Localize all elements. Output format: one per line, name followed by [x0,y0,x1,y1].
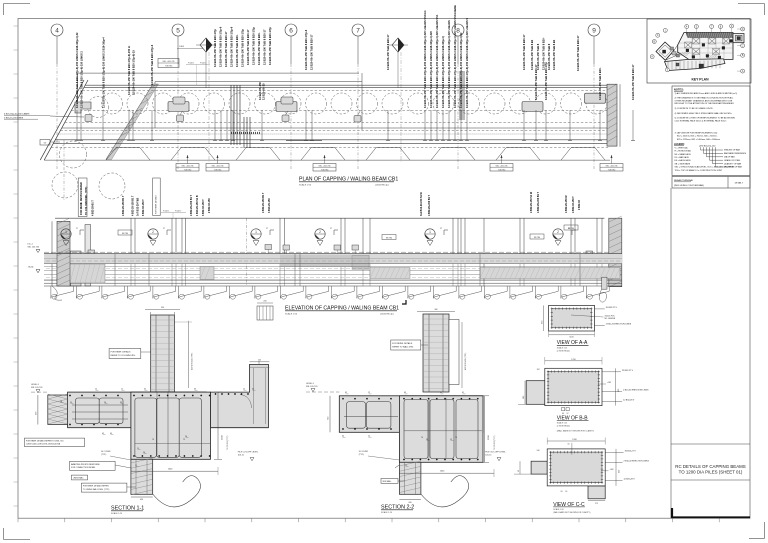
svg-text:50 COVER: 50 COVER [101,451,111,453]
svg-text:SSL +105.745: SSL +105.745 [163,61,175,63]
svg-text:(1500/780 dp): (1500/780 dp) [375,184,389,186]
svg-text:6 B32-03-150 T: 6 B32-03-150 T [142,199,145,216]
svg-text:90: 90 [518,470,520,472]
svg-text:GRADE OF STEEL: GRADE OF STEEL [724,159,740,162]
svg-text:SSL +105.745: SSL +105.745 [182,166,194,168]
svg-text:(TYP.): (TYP.) [359,454,365,456]
svg-text:(1500/780 dp): (1500/780 dp) [380,313,394,315]
svg-text:REFER TO WALL DRG.: REFER TO WALL DRG. [392,345,414,348]
svg-text:SCALE 1:50: SCALE 1:50 [285,312,298,315]
svg-text:105.15: 105.15 [485,455,492,457]
svg-text:5: 5 [176,27,180,34]
svg-text:SSL +105.745: SSL +105.745 [319,166,331,168]
svg-text:12 B20-05+150 T&B 8 B20-17(p-6: 12 B20-05+150 T&B 8 B20-17(p-6)-150 LINK… [75,32,79,108]
svg-text:12 B20-05+150 T&B 8 B20-: 12 B20-05+150 T&B 8 B20- [598,67,602,100]
svg-text:20 COVER: 20 COVER [359,451,369,453]
svg-text:FOR CONNECTION DETAIL: FOR CONNECTION DETAIL [71,466,95,469]
svg-text:2 B32-03: 2 B32-03 [578,199,581,210]
svg-text:450 W/SGGD (TYP.): 450 W/SGGD (TYP.) [192,352,194,370]
svg-text:1: 1 [65,230,67,234]
svg-text:12 B20-05+150 T&B 8 B20-17(p-6: 12 B20-05+150 T&B 8 B20-17(p-6 [219,26,223,67]
svg-text:(2 NOS REQD): (2 NOS REQD) [557,426,570,428]
svg-text:12 B20-05+150 T&B 8 B20-17: 12 B20-05+150 T&B 8 B20-17 [522,34,526,70]
svg-text:12 B20-05+150 T&B 8 B20-17(p: 12 B20-05+150 T&B 8 B20-17(p [252,27,256,65]
svg-text:1463: 1463 [179,46,185,48]
svg-text:PCA/L1: PCA/L1 [163,210,169,213]
svg-text:KEY PLAN: KEY PLAN [691,78,709,82]
svg-text:12 B20-05+150 T&B 8 B20-17: 12 B20-05+150 T&B 8 B20-17 [576,35,580,71]
svg-text:12 B20-05+150: 12 B20-05+150 [258,81,262,100]
svg-text:16: 16 [565,491,567,493]
svg-text:SB = SIDE BARS: SB = SIDE BARS [675,162,691,165]
svg-text:2) THE DRAWING IS TO BE READ I: 2) THE DRAWING IS TO BE READ IN CONJUNCT… [675,97,735,100]
svg-text:SCALE 1:25: SCALE 1:25 [557,422,567,425]
svg-text:7: 7 [356,27,360,34]
svg-text:FOR REINF. DETAILS: FOR REINF. DETAILS [155,194,158,214]
svg-text:SSL 105.745: SSL 105.745 [28,246,40,248]
svg-text:450 W/SGGD (TYP.): 450 W/SGGD (TYP.) [465,352,467,370]
svg-text:5) CONCRETE COVER OF REINFORCE: 5) CONCRETE COVER OF REINFORCEMENT TO BE… [675,117,736,120]
svg-text:12 B20-05+150 T&B 8 B20-17: 12 B20-05+150 T&B 8 B20-17 [263,29,267,65]
svg-text:12 B20-05+150 T&B 8 B20-17(p-6: 12 B20-05+150 T&B 8 B20-17(p-6 [150,44,154,85]
svg-text:12 B20-05+150 T&B 8 B20-17: 12 B20-05+150 T&B 8 B20-17 [631,64,635,100]
svg-text:12 B20-05+150 T&B 8 B20-17(p-6: 12 B20-05+150 T&B 8 B20-17(p-6)-15 [132,50,136,95]
svg-text:SCALE 1:20: SCALE 1:20 [111,512,123,515]
svg-text:FF = FAR FACE: FF = FAR FACE [675,156,690,159]
svg-text:OTHER RELEVANT DRAWINGS. ANY D: OTHER RELEVANT DRAWINGS. ANY DISCREPANCI… [675,99,733,102]
svg-text:DETAIL T: DETAIL T [735,181,744,184]
svg-text:12 B20-05+150 T&B 8 B20-17(p-6: 12 B20-05+150 T&B 8 B20-17(p-6)-150 LINK… [447,20,451,108]
svg-text:75 COVER (TYP.): 75 COVER (TYP.) [494,435,496,450]
svg-text:275: 275 [595,503,598,505]
svg-text:4 B32-03-150 T: 4 B32-03-150 T [572,196,575,213]
svg-text:H = HORIZONTAL: H = HORIZONTAL [675,150,692,153]
svg-text:(2 NOS REQD): (2 NOS REQD) [557,350,570,352]
svg-text:SB 784: SB 784 [122,233,128,235]
svg-text:1) ALL DIMENSIONS ARE IN mm AN: 1) ALL DIMENSIONS ARE IN mm AND LEVELS A… [675,92,738,95]
svg-text:4 B32-29-150 S1 W: 4 B32-29-150 S1 W [530,191,533,213]
svg-text:DIA OF BAR: DIA OF BAR [724,156,735,159]
svg-text:12 B20-05+150 T&B 8 B20-17(p-6: 12 B20-05+150 T&B 8 B20-17(p-6 [230,26,234,67]
svg-text:2: 2 [557,230,559,234]
svg-text:27: 27 [163,228,165,230]
svg-text:200: 200 [258,360,261,362]
svg-text:SCALE 1:50: SCALE 1:50 [299,183,312,186]
svg-text:4 B32-29+150 B1 T: 4 B32-29+150 B1 T [428,194,431,216]
svg-text:4: 4 [55,27,59,34]
svg-text:Cmin INTERNAL FACE 50mm & EXTE: Cmin INTERNAL FACE 50mm & EXTERNAL FACE … [675,119,727,122]
svg-text:3x4 B10-29-150 S1 W: 3x4 B10-29-150 S1 W [420,191,423,216]
svg-text:SB 784: SB 784 [568,228,574,230]
svg-text:PILE CUT-OFF LEVEL: PILE CUT-OFF LEVEL [238,452,259,454]
svg-text:PCA/L2: PCA/L2 [200,62,206,65]
svg-text:(TYP.): (TYP.) [101,454,107,456]
svg-text:3 B10-29-150: 3 B10-29-150 [268,198,271,213]
svg-text:SCALE 1:25: SCALE 1:25 [557,346,567,349]
svg-text:NOTES:: NOTES: [674,88,684,92]
svg-text:(WALL BARS NOT SHOWN FOR CLARI: (WALL BARS NOT SHOWN FOR CLARITY) [557,429,595,432]
svg-text:7) LAP LENGTH FOR REINFORCEMEN: 7) LAP LENGTH FOR REINFORCEMENT (mm): [675,131,719,134]
svg-text:12 B20-05+150 T&B 8 B2: 12 B20-05+150 T&B 8 B2 [530,39,534,70]
svg-text:SB 784: SB 784 [534,237,540,239]
svg-text:12 B20-05+150 T&B 8 B20-: 12 B20-05+150 T&B 8 B20- [235,34,239,67]
svg-text:REFER TO COLUMN DRG.: REFER TO COLUMN DRG. [111,355,136,357]
svg-text:3 B32-03-150 T: 3 B32-03-150 T [202,199,205,216]
svg-text:12 B20-05+15: 12 B20-05+15 [262,83,266,100]
svg-text:12 B20-05+150 T&B 8 B20-17(p-6: 12 B20-05+150 T&B 8 B20-17(p-6)-150 LINK… [441,36,445,108]
svg-text:12 B20-05+150 T&B 8 B2: 12 B20-05+150 T&B 8 B2 [552,39,556,70]
svg-text:4 B25-16(p-4)-320 U-BARS: 4 B25-16(p-4)-320 U-BARS [4,113,30,116]
svg-text:MULTIPLES OF BAR: MULTIPLES OF BAR [724,166,743,169]
svg-text:12 B20-05+150 T&B 8 B20-17(p-6: 12 B20-05+150 T&B 8 B20-17(p-6)-150 LINK… [102,37,106,108]
svg-text:NF = NEAR FACE: NF = NEAR FACE [675,153,692,156]
svg-text:12 B20-05+150 T&B 8 B20-: 12 B20-05+150 T&B 8 B20- [542,37,546,70]
svg-text:SSL +105.745: SSL +105.745 [606,166,618,168]
svg-text:12 B20-05+150 T&B 8 B20-17: 12 B20-05+150 T&B 8 B20-17 [224,31,228,67]
svg-text:TO LINING WALL DWG. (TYP.): TO LINING WALL DWG. (TYP.) [83,488,110,491]
svg-text:12 B20-05+150 T&B 8: 12 B20-05+150 T&B 8 [536,43,540,70]
svg-text:SSL +105.745: SSL +105.745 [496,166,508,168]
svg-text:PILE CUT-OFF LEVEL: PILE CUT-OFF LEVEL [485,452,506,454]
svg-text:LEVEL-1: LEVEL-1 [31,384,40,386]
svg-text:BROUGHT TO THE ATTENTION OF TH: BROUGHT TO THE ATTENTION OF THE RELEVANT… [675,102,735,105]
svg-text:12 B20-05+150 T&B 8 B20-17(p: 12 B20-05+150 T&B 8 B20-17(p [213,29,217,67]
svg-text:TOB = TOP OF BEAM C: TOB = TOP OF BEAM CJ = CONSTRUCTION JOIN… [675,169,723,172]
svg-text:50: 50 [568,443,570,445]
svg-text:12 B20-05+150 T&B 8 B20-17(p-6: 12 B20-05+150 T&B 8 B20-17(p-6 [304,29,308,70]
svg-text:12 B20-05+150 T&B 8: 12 B20-05+150 T&B 8 [547,43,551,70]
svg-text:FOR REINF. DETAILS REFER TO DW: FOR REINF. DETAILS REFER TO DWL. NO. [26,439,64,442]
svg-text:3x7 B32-29-T&B: 3x7 B32-29-T&B [136,198,139,216]
svg-text:TOB 784: TOB 784 [498,170,506,172]
svg-text:12 B20-05+150 T&B 8 B20-17(p-6: 12 B20-05+150 T&B 8 B20-17(p-6)-150 LINK… [429,31,433,108]
svg-text:LVL-1: LVL-1 [28,244,34,246]
svg-text:12 B25-28 V: 12 B25-28 V [624,479,636,481]
svg-text:27: 27 [330,228,332,230]
svg-text:12 B20-05+150 T&B 8 B20-: 12 B20-05+150 T&B 8 B20- [257,32,261,65]
svg-text:SCALE 1:20: SCALE 1:20 [381,511,393,514]
svg-text:150mm PVC: 150mm PVC [605,315,616,317]
svg-text:9: 9 [592,27,596,34]
svg-text:SSL +105.745: SSL +105.745 [212,166,224,168]
svg-text:BAR MARK REFERENCE: BAR MARK REFERENCE [724,152,747,155]
svg-text:12 B20-05+150 T&B 8 B20-17: 12 B20-05+150 T&B 8 B20-17 [310,34,314,70]
svg-text:4 B32-29-150 B1 T: 4 B32-29-150 B1 T [262,192,265,213]
svg-text:650: 650 [618,470,620,473]
svg-text:12 B20-05+150 T&B 8 B20-17(p-6: 12 B20-05+150 T&B 8 B20-17(p-6)-150 LINK… [459,32,463,108]
svg-text:QUANTITY OF BAR: QUANTITY OF BAR [724,162,742,165]
svg-text:4 B32-29-150 B1 T: 4 B32-29-150 B1 T [122,195,125,216]
svg-text:162: 162 [537,369,540,371]
svg-text:1 B10-29-150 S1 B: 1 B10-29-150 S1 B [196,195,199,216]
svg-text:22 B32-27 V: 22 B32-27 V [622,370,634,372]
svg-text:RC DETAILS OF CAPPING BEAMS: RC DETAILS OF CAPPING BEAMS [675,464,745,469]
svg-text:12 B20-05+150 T&B 8 B20-17(p-6: 12 B20-05+150 T&B 8 B20-17(p-6)-150 LI [127,45,131,95]
svg-text:27: 27 [440,228,442,230]
svg-text:1: 1 [429,230,431,234]
svg-text:SIDE WALL: SIDE WALL [383,480,392,483]
svg-text:2 B10-32 ERECTION LINKS: 2 B10-32 ERECTION LINKS [623,390,649,392]
svg-text:TOB 784: TOB 784 [608,170,616,172]
svg-text:12 B20-05+150 T&B 8 B20-17(p: 12 B20-05+150 T&B 8 B20-17(p [241,29,245,67]
svg-text:103.15: 103.15 [238,455,245,457]
svg-text:3) CONCRETE TO BE OF GRADE C45: 3) CONCRETE TO BE OF GRADE C45/20 [675,107,714,110]
svg-text:20: 20 [561,491,563,493]
svg-text:PCA/L2: PCA/L2 [175,210,181,213]
svg-text:2 B10-31 ERECTION LINKS: 2 B10-31 ERECTION LINKS [606,324,632,326]
svg-text:20 B32-27 V: 20 B32-27 V [606,307,618,309]
svg-text:SSL 105.745: SSL 105.745 [31,387,43,389]
svg-text:2: 2 [319,230,321,234]
svg-text:TO 1200 DIA PILES (SHEET 01): TO 1200 DIA PILES (SHEET 01) [679,470,743,475]
svg-text:12 B20-05+150 T&B 8 B20-17(p-6: 12 B20-05+150 T&B 8 B20-17(p-6)-150 LINK… [423,11,427,108]
svg-text:4 B32-29+150 B1 T: 4 B32-29+150 B1 T [190,194,193,216]
svg-text:LINING WALL: LINING WALL [73,477,84,480]
svg-text:TOB 784: TOB 784 [165,66,173,68]
svg-text:(470 B20-15)-150: (470 B20-15)-150 [699,145,716,147]
svg-text:C0837-L&B-C-DRG-5701_B5312-607: C0837-L&B-C-DRG-5701_B5312-6072A [26,443,61,446]
svg-text:12 B20-05+150 T&B 8 B20-17: 12 B20-05+150 T&B 8 B20-17 [386,34,390,70]
svg-text:140: 140 [537,450,540,452]
svg-text:4 B32-29-B1 T: 4 B32-29-B1 T [91,200,94,216]
svg-text:TOB 784: TOB 784 [321,170,329,172]
svg-text:SB 784: SB 784 [386,237,392,239]
svg-text:SPACING OF BAR: SPACING OF BAR [724,149,741,152]
svg-text:12 B20-05+150 T&B 8 B20-17(p-6: 12 B20-05+150 T&B 8 B20-17(p-6)-150 LINK… [80,51,84,108]
svg-text:FOR REINF. DETAILS REFER: FOR REINF. DETAILS REFER [83,485,109,488]
svg-text:12 B20-05+150 T&B 8 B20-17(p-6: 12 B20-05+150 T&B 8 B20-17(p-6)-150 LINK… [453,5,457,108]
svg-text:12 B20-05+150 T&B 8 B20-17(p-6: 12 B20-05+150 T&B 8 B20-17(p-6)-150 LINK… [465,18,469,108]
svg-text:+162: +162 [610,469,614,471]
svg-text:6: 6 [289,27,293,34]
svg-text:PCA/L1: PCA/L1 [188,62,194,65]
svg-text:12 B20-05+150 T&B 8 B20-17(p: 12 B20-05+150 T&B 8 B20-17(p [268,27,272,65]
svg-text:FOR REINF. DETAILS: FOR REINF. DETAILS [392,342,413,345]
svg-text:(INCLUDING COUPLER BAR): (INCLUDING COUPLER BAR) [674,184,704,187]
svg-text:NO. SLEEVE: NO. SLEEVE [605,318,616,320]
svg-text:1: 1 [255,230,257,234]
svg-text:12 B20-05+150 T&B 8 B20-17(p-6: 12 B20-05+150 T&B 8 B20-17(p-6)-150 LINK… [435,14,439,108]
svg-text:4 B32-29-150 W: 4 B32-29-150 W [565,195,568,213]
svg-text:TOB 784: TOB 784 [184,170,192,172]
svg-text:75: 75 [183,439,185,441]
svg-text:74: 74 [152,439,154,441]
svg-text:EF = EACH FACE: EF = EACH FACE [675,159,692,162]
svg-text:36 B25-27 V: 36 B25-27 V [625,451,637,453]
svg-text:27: 27 [266,228,268,230]
svg-text:74: 74 [421,437,423,439]
svg-text:12 B20-05+150 T&B 8 B20-17: 12 B20-05+150 T&B 8 B20-17 [246,29,250,65]
svg-text:2: 2 [152,230,154,234]
svg-text:GL(S): GL(S) [28,267,34,269]
svg-text:TOB 784: TOB 784 [214,170,222,172]
svg-text:4 B32-29+150 B1 T: 4 B32-29+150 B1 T [537,191,540,213]
svg-text:REBAR TERMINAL: REBAR TERMINAL [674,179,694,182]
svg-text:580: 580 [523,396,525,399]
svg-text:75 COVER (TYP.): 75 COVER (TYP.) [227,435,229,450]
svg-text:+162: +162 [607,382,611,384]
svg-text:AWAITING PSI SITE RESPONSE: AWAITING PSI SITE RESPONSE [71,463,100,466]
svg-text:(WALL BARS NOT SHOWN FOR CLARI: (WALL BARS NOT SHOWN FOR CLARITY) [553,511,591,514]
svg-text:B25 = 1125mm, B32 = 1400mm,: B25 = 1125mm, B32 = 1400mm, B40 = 1800mm [677,139,720,141]
svg-text:FOR REINF. DETAILS: FOR REINF. DETAILS [111,350,132,353]
svg-text:V = VERTICAL: V = VERTICAL [675,146,689,149]
svg-text:B12 = 500mm, B16 = 700mm, B2: B12 = 500mm, B16 = 700mm, B20 = 900mm, [677,136,718,138]
svg-text:TO COLUMN DRG. (TYP.): TO COLUMN DRG. (TYP.) [85,186,88,215]
svg-text:SCALE 1:20: SCALE 1:20 [553,508,563,511]
svg-text:4) DEFORMED HIGH YIELD STEEL B: 4) DEFORMED HIGH YIELD STEEL BARS SHALL … [675,112,733,115]
svg-text:SSL 105.745: SSL 105.745 [306,386,318,388]
svg-text:12 B32-28 V: 12 B32-28 V [623,400,635,402]
svg-text:75: 75 [455,437,457,439]
svg-text:FOR REINF. DETAILS REFER: FOR REINF. DETAILS REFER [80,182,83,215]
svg-text:4 B32-29-150 B1 T: 4 B32-29-150 B1 T [131,195,134,216]
svg-text:2 B10-32 ERECTION LINKS: 2 B10-32 ERECTION LINKS [624,460,650,462]
svg-text:2 B32-03-150: 2 B32-03-150 [208,198,211,213]
svg-text:27: 27 [76,228,78,230]
svg-text:LEVEL-1: LEVEL-1 [306,383,315,385]
